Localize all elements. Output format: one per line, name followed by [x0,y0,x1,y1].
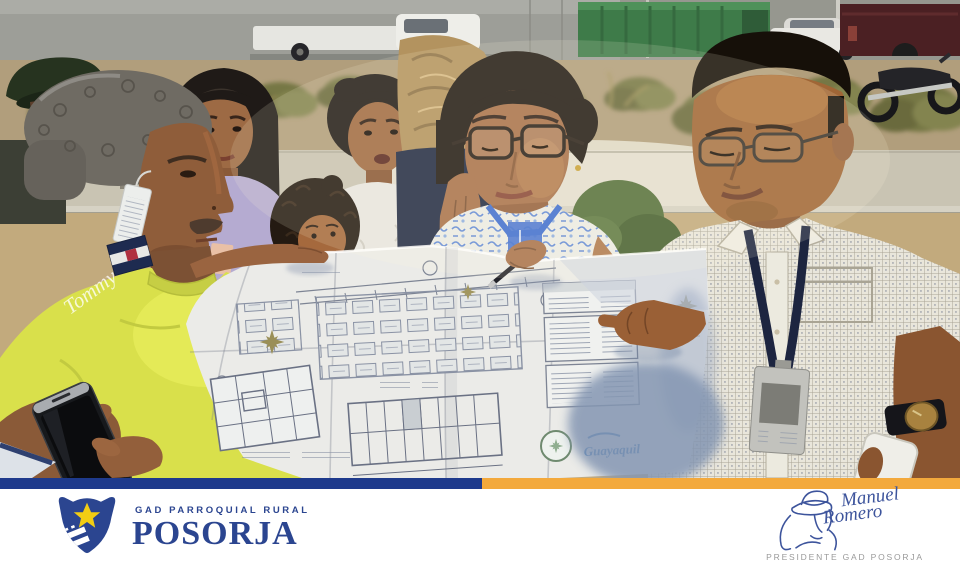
sunlight-overlay [230,40,890,280]
brand-text: GAD PARROQUIAL RURAL POSORJA [132,503,310,552]
floor-plan-left [210,365,319,450]
page: Tommy [0,0,960,568]
id-badge [749,358,810,455]
municipal-seal [541,431,571,461]
posorja-shield-logo [52,493,122,561]
president-signature-block: Manuel Romero PRESIDENTE GAD POSORJA [730,482,960,566]
eye [180,170,196,177]
brand-tagline: GAD PARROQUIAL RURAL [135,505,310,516]
footer-banner: GAD PARROQUIAL RURAL POSORJA Manuel Rome… [0,478,960,568]
accent-stripe-blue [0,478,482,489]
housing-blocks [316,287,522,379]
signature-title: PRESIDENTE GAD POSORJA [730,552,960,562]
maroon-pickup [840,4,960,56]
blueprint-sheet: Guayaquil [186,246,724,478]
photo-scene: Tommy [0,0,960,478]
brand-name: POSORJA [132,517,310,552]
posorja-logo-lockup: GAD PARROQUIAL RURAL POSORJA [52,493,310,561]
